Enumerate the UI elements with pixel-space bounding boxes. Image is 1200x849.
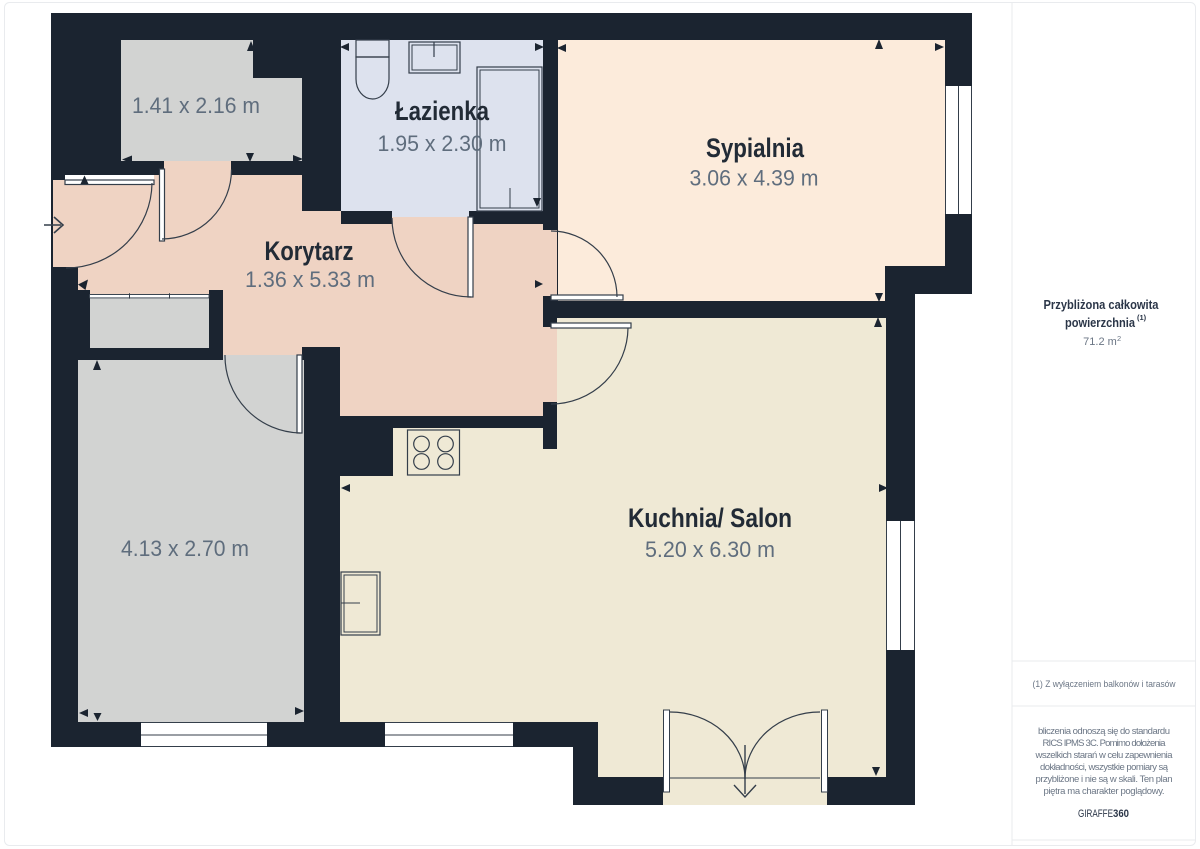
svg-text:(1): (1): [1137, 313, 1147, 322]
svg-text:przybliżone i nie są w skali.: przybliżone i nie są w skali. Ten plan: [1036, 774, 1173, 785]
svg-text:wszelkich starań w celu zapewn: wszelkich starań w celu zapewnienia: [1035, 750, 1174, 761]
svg-text:3.06 x 4.39 m: 3.06 x 4.39 m: [690, 166, 819, 191]
svg-text:bliczenia odnoszą się do stand: bliczenia odnoszą się do standardu: [1038, 726, 1170, 737]
svg-text:(1) Z wyłączeniem balkonów i t: (1) Z wyłączeniem balkonów i tarasów: [1033, 679, 1176, 690]
svg-text:piętra ma charakter poglądowy.: piętra ma charakter poglądowy.: [1044, 786, 1165, 797]
svg-text:Łazienka: Łazienka: [395, 96, 489, 126]
svg-text:5.20 x 6.30 m: 5.20 x 6.30 m: [645, 537, 775, 562]
svg-text:1.41 x 2.16 m: 1.41 x 2.16 m: [132, 93, 260, 118]
svg-text:RICS IPMS 3C. Pomimo dołożenia: RICS IPMS 3C. Pomimo dołożenia: [1043, 738, 1167, 749]
svg-text:powierzchnia: powierzchnia: [1065, 315, 1136, 330]
svg-text:360: 360: [1113, 808, 1129, 820]
svg-text:dokładności, wszystkie pomiary: dokładności, wszystkie pomiary są: [1040, 762, 1169, 773]
svg-text:1.95 x 2.30 m: 1.95 x 2.30 m: [378, 131, 507, 156]
svg-text:2: 2: [1117, 334, 1121, 343]
svg-text:1.36 x 5.33 m: 1.36 x 5.33 m: [245, 267, 375, 292]
svg-text:Kuchnia/ Salon: Kuchnia/ Salon: [628, 503, 792, 533]
svg-text:Sypialnia: Sypialnia: [706, 133, 804, 163]
svg-text:Przybliżona całkowita: Przybliżona całkowita: [1044, 297, 1160, 312]
svg-text:4.13 x 2.70 m: 4.13 x 2.70 m: [121, 536, 249, 561]
svg-text:71.2 m: 71.2 m: [1083, 336, 1117, 348]
svg-text:GIRAFFE: GIRAFFE: [1078, 808, 1113, 820]
svg-text:Korytarz: Korytarz: [265, 236, 354, 266]
